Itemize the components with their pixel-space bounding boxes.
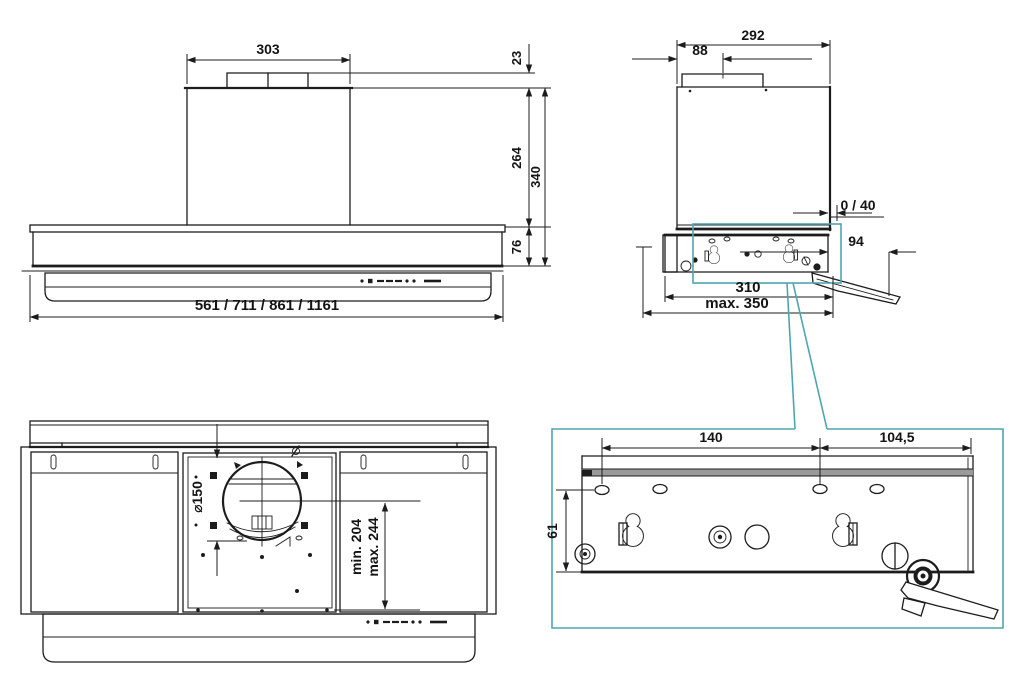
bottom-view: ⌀150 min. 204 max. 244 [21, 421, 496, 662]
front-view-outline [22, 73, 505, 301]
keyhole-slot-icon [623, 514, 643, 546]
dim-duct-diameter: ⌀150 [189, 481, 205, 513]
dim-max-height: max. 244 [365, 517, 381, 576]
detail-view: 140 104,5 61 [544, 429, 1003, 628]
keyhole-slot-icon [709, 246, 720, 263]
mounting-hole [813, 485, 827, 494]
control-panel-buttons [366, 620, 447, 624]
mounting-hole [595, 486, 609, 495]
dim-hole-spacing: 140 [699, 429, 723, 445]
dim-min-height: min. 204 [348, 519, 364, 575]
detail-callout-leader [787, 283, 827, 429]
dim-duct-offset: 88 [692, 42, 708, 58]
round-hole [745, 525, 769, 549]
dim-plate-depth: 310 [735, 279, 760, 296]
dim-plate-height: 61 [544, 523, 560, 539]
dim-edge-offset: 104,5 [879, 429, 914, 445]
motor-housing [183, 453, 336, 612]
mounting-hole [653, 485, 667, 494]
duct-connector-side [682, 74, 763, 87]
keyhole-slot-icon [833, 514, 853, 546]
dim-total-height: 340 [528, 166, 543, 188]
left-filter-panel [31, 452, 178, 612]
side-mounting-plate [663, 224, 900, 304]
detail-plate [575, 456, 998, 619]
technical-drawing-canvas: 303 23 264 340 76 561 / 711 / 861 / 1161 [0, 0, 1024, 686]
keyhole-slot-icon [784, 245, 795, 262]
fan-outlet [195, 446, 421, 613]
top-plate [30, 225, 505, 232]
bottom-view-outline [21, 421, 496, 614]
hinge-lever [812, 273, 900, 304]
side-view-dimensions: 292 88 0 / 40 94 310 max. 350 [632, 27, 916, 318]
underside-face [21, 447, 496, 614]
bottom-visor [43, 614, 475, 662]
side-view: 292 88 0 / 40 94 310 max. 350 [632, 27, 916, 318]
mounting-hole [870, 485, 884, 494]
mounting-rail [582, 469, 973, 476]
front-view-dimensions: 303 23 264 340 76 561 / 711 / 861 / 1161 [30, 41, 551, 322]
dim-duct-width: 303 [256, 41, 280, 57]
dim-depth: 292 [741, 27, 765, 43]
front-view: 303 23 264 340 76 561 / 711 / 861 / 1161 [22, 41, 551, 322]
dim-chimney-height: 264 [509, 146, 524, 168]
dim-wall-clearance: 0 / 40 [840, 197, 875, 213]
side-view-outline [677, 74, 830, 230]
dim-available-widths: 561 / 711 / 861 / 1161 [195, 297, 339, 314]
dim-max-depth: max. 350 [705, 295, 768, 312]
dim-body-height: 76 [509, 240, 524, 254]
installation-drawing: 303 23 264 340 76 561 / 711 / 861 / 1161 [0, 0, 1024, 686]
dim-connector-height: 23 [509, 51, 524, 65]
dim-bracket-extension: 94 [848, 233, 864, 249]
control-panel-buttons [360, 279, 441, 283]
